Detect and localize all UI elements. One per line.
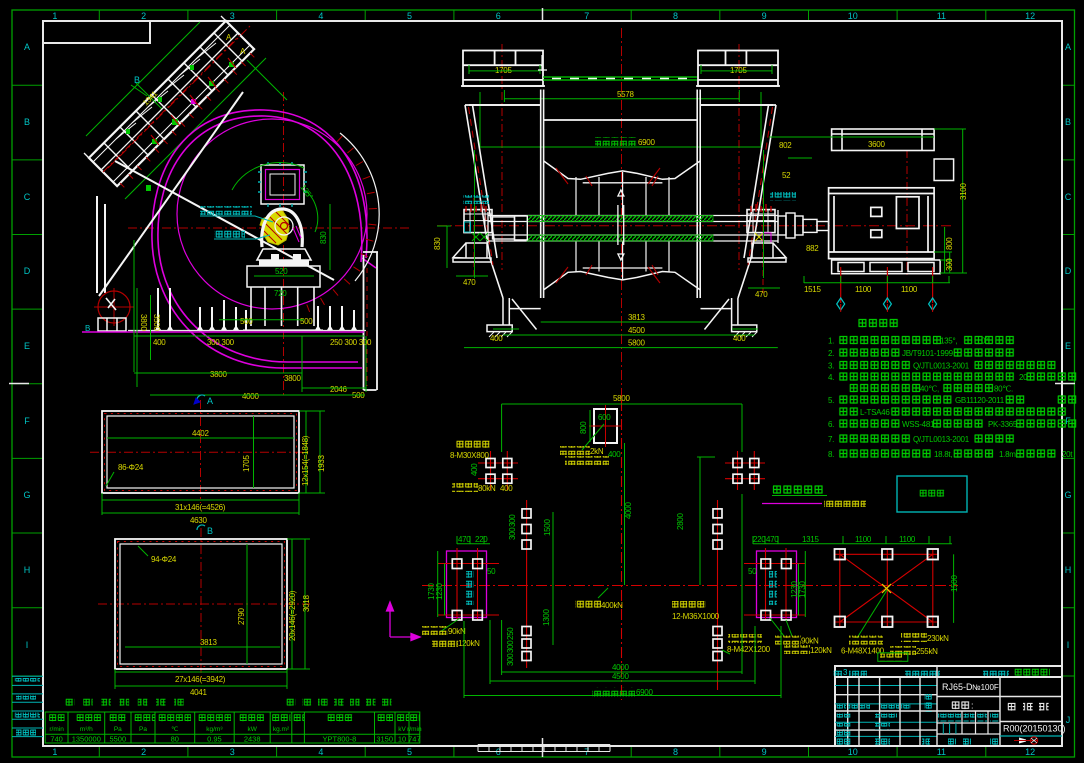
svg-text:12: 12 — [1025, 747, 1035, 757]
svg-text:B: B — [134, 75, 140, 85]
svg-text:300: 300 — [506, 640, 515, 653]
svg-text:12: 12 — [1025, 11, 1035, 21]
svg-text:4500: 4500 — [628, 326, 645, 335]
svg-text:A: A — [24, 42, 30, 52]
svg-text:I: I — [26, 640, 29, 650]
svg-text:2.: 2. — [828, 349, 834, 358]
svg-text:5.: 5. — [828, 396, 834, 405]
svg-text:Q/JTL0013-2001: Q/JTL0013-2001 — [913, 362, 970, 371]
svg-text:90kN: 90kN — [801, 637, 819, 646]
svg-text:1705: 1705 — [242, 455, 251, 472]
svg-text:300: 300 — [945, 258, 954, 271]
svg-text:8-M30X800: 8-M30X800 — [450, 451, 490, 460]
svg-text:8: 8 — [673, 747, 678, 757]
svg-text:1100: 1100 — [855, 285, 872, 294]
svg-text:1100: 1100 — [899, 535, 916, 544]
svg-text:8.: 8. — [828, 450, 834, 459]
svg-text:8-M42X1200: 8-M42X1200 — [727, 645, 771, 654]
svg-text:800: 800 — [579, 421, 588, 434]
svg-text:C: C — [24, 192, 31, 202]
svg-text:5: 5 — [407, 11, 412, 21]
svg-text:D: D — [24, 266, 31, 276]
svg-text:1100: 1100 — [901, 285, 918, 294]
svg-text:20t: 20t — [1062, 450, 1073, 459]
svg-text:3800: 3800 — [139, 314, 148, 331]
svg-text:B: B — [1065, 117, 1071, 127]
svg-text:470: 470 — [766, 535, 779, 544]
svg-text:3.: 3. — [828, 362, 834, 371]
svg-text:27x146(=3942): 27x146(=3942) — [175, 675, 226, 684]
svg-text:10: 10 — [848, 11, 858, 21]
svg-text:18.8t,: 18.8t, — [934, 450, 952, 459]
svg-text:WSS-481: WSS-481 — [902, 420, 935, 429]
svg-text:5578: 5578 — [617, 90, 634, 99]
svg-text:r/min: r/min — [49, 726, 64, 733]
svg-text:400kN: 400kN — [601, 601, 623, 610]
svg-text:470: 470 — [458, 535, 471, 544]
svg-text:I: I — [1067, 640, 1070, 650]
svg-text:2790: 2790 — [237, 608, 246, 625]
svg-text:80: 80 — [171, 735, 179, 744]
svg-text:86-Φ24: 86-Φ24 — [118, 463, 144, 472]
svg-text:470: 470 — [755, 290, 768, 299]
svg-text:120kN: 120kN — [810, 646, 832, 655]
svg-text:GB11120-2011: GB11120-2011 — [955, 396, 1005, 405]
svg-text:4000: 4000 — [624, 502, 633, 519]
svg-text:Pa: Pa — [139, 726, 147, 733]
svg-text:500: 500 — [240, 317, 253, 326]
svg-text:400: 400 — [153, 338, 166, 347]
svg-text:1.: 1. — [828, 337, 834, 346]
svg-text:C: C — [1065, 192, 1072, 202]
svg-text:747: 747 — [408, 735, 421, 744]
svg-text:2kN: 2kN — [590, 447, 604, 456]
svg-text:1230: 1230 — [435, 583, 444, 600]
svg-text:r/min: r/min — [407, 726, 422, 733]
svg-text:kV: kV — [398, 726, 406, 733]
svg-text:kg/m³: kg/m³ — [206, 726, 223, 733]
svg-text:400: 400 — [490, 334, 503, 343]
svg-text:6900: 6900 — [638, 138, 655, 147]
svg-text:m³/h: m³/h — [80, 726, 93, 733]
svg-text:№100F: №100F — [972, 683, 999, 692]
svg-text:3600: 3600 — [868, 140, 885, 149]
svg-text:3500: 3500 — [152, 314, 161, 331]
svg-text:2: 2 — [141, 747, 146, 757]
svg-text:11: 11 — [937, 11, 946, 21]
svg-text:7.: 7. — [828, 435, 834, 444]
svg-text:220: 220 — [753, 535, 766, 544]
svg-text:3: 3 — [230, 11, 235, 21]
svg-text:20x146(=2920): 20x146(=2920) — [288, 590, 297, 641]
svg-text:L-TSA46: L-TSA46 — [860, 408, 890, 417]
svg-text:5: 5 — [407, 747, 412, 757]
svg-text:10: 10 — [848, 747, 858, 757]
svg-text:E: E — [1065, 341, 1071, 351]
svg-text:50: 50 — [748, 567, 757, 576]
svg-text:9: 9 — [762, 11, 767, 21]
svg-text:1: 1 — [52, 747, 57, 757]
svg-text:4.: 4. — [828, 373, 834, 382]
svg-text:255kN: 255kN — [916, 647, 938, 656]
svg-text:YPT800-8: YPT800-8 — [323, 735, 357, 744]
svg-text:90kN: 90kN — [448, 627, 466, 636]
svg-text:12x154(=1848): 12x154(=1848) — [301, 435, 310, 486]
svg-text:3: 3 — [230, 747, 235, 757]
svg-text:3018: 3018 — [302, 595, 311, 612]
svg-text:5800: 5800 — [628, 339, 645, 348]
svg-text:2438: 2438 — [244, 735, 261, 744]
svg-text:80kN: 80kN — [478, 484, 496, 493]
svg-text:9: 9 — [762, 747, 767, 757]
svg-text:kg.m²: kg.m² — [273, 726, 290, 733]
svg-text:12-M36X1000: 12-M36X1000 — [672, 612, 720, 621]
svg-text:H: H — [1065, 565, 1072, 575]
svg-text:1300: 1300 — [542, 609, 551, 626]
svg-text:PK-3365: PK-3365 — [988, 420, 1018, 429]
svg-text:120kN: 120kN — [458, 639, 480, 648]
svg-text:3150: 3150 — [376, 735, 393, 744]
svg-text:A: A — [240, 47, 246, 56]
svg-text:G: G — [23, 490, 30, 500]
svg-text:3100: 3100 — [959, 183, 968, 200]
svg-text:2800: 2800 — [676, 513, 685, 530]
svg-text:230kN: 230kN — [927, 634, 949, 643]
svg-text:8: 8 — [673, 11, 678, 21]
svg-text:D: D — [1065, 266, 1072, 276]
svg-text:1315: 1315 — [802, 535, 819, 544]
svg-text:4: 4 — [318, 747, 323, 757]
svg-text::: : — [971, 701, 974, 711]
svg-text:1350000: 1350000 — [72, 735, 101, 744]
svg-text:300: 300 — [508, 527, 517, 540]
svg-text:G: G — [1064, 490, 1071, 500]
svg-text:4: 4 — [318, 11, 323, 21]
svg-text:1500: 1500 — [543, 519, 552, 536]
svg-text:E: E — [24, 341, 30, 351]
svg-text:3: 3 — [843, 668, 848, 677]
svg-text:300 300: 300 300 — [207, 338, 235, 347]
svg-text:500: 500 — [300, 317, 313, 326]
svg-text:520: 520 — [275, 267, 288, 276]
svg-text:℃: ℃ — [171, 726, 179, 733]
svg-text:94-Φ24: 94-Φ24 — [151, 555, 177, 564]
svg-text:1100: 1100 — [855, 535, 872, 544]
svg-text:400: 400 — [733, 334, 746, 343]
svg-text:4041: 4041 — [190, 688, 207, 697]
svg-text:3800: 3800 — [210, 370, 227, 379]
svg-text:400: 400 — [470, 463, 479, 476]
svg-text:740: 740 — [50, 735, 63, 744]
svg-text:H: H — [24, 565, 31, 575]
svg-text:10: 10 — [398, 735, 406, 744]
svg-text:4630: 4630 — [190, 516, 207, 525]
svg-text:4402: 4402 — [192, 429, 209, 438]
svg-text:3800: 3800 — [284, 374, 301, 383]
svg-text:6.: 6. — [828, 420, 834, 429]
svg-text:J: J — [1066, 715, 1071, 725]
svg-text:4000: 4000 — [612, 663, 629, 672]
svg-text:300: 300 — [506, 653, 515, 666]
svg-text:6900: 6900 — [636, 688, 653, 697]
svg-text:882: 882 — [806, 244, 819, 253]
svg-text:1515: 1515 — [804, 285, 821, 294]
svg-text:4500: 4500 — [612, 672, 629, 681]
svg-text:830: 830 — [433, 237, 442, 250]
svg-text:135°,: 135°, — [940, 337, 957, 346]
svg-text:5500: 5500 — [109, 735, 126, 744]
svg-text:52: 52 — [782, 171, 791, 180]
svg-text:3813: 3813 — [200, 638, 217, 647]
svg-text:B: B — [24, 117, 30, 127]
svg-text:400: 400 — [500, 484, 513, 493]
svg-text:6: 6 — [496, 11, 501, 21]
svg-text:Q/JTL0013-2001: Q/JTL0013-2001 — [913, 435, 970, 444]
svg-text:50: 50 — [487, 567, 496, 576]
svg-text:B: B — [207, 526, 213, 536]
svg-text:470: 470 — [463, 278, 476, 287]
svg-text:802: 802 — [779, 141, 792, 150]
svg-text:400: 400 — [608, 450, 621, 459]
svg-text:kW: kW — [248, 726, 258, 733]
svg-text:RJ65-D: RJ65-D — [942, 682, 973, 692]
svg-text:B: B — [85, 324, 90, 333]
svg-text:A: A — [207, 396, 213, 406]
svg-text:2046: 2046 — [330, 385, 347, 394]
svg-text:250: 250 — [506, 627, 515, 640]
svg-text:1: 1 — [52, 11, 57, 21]
svg-text:A: A — [1065, 42, 1071, 52]
svg-text:7: 7 — [584, 11, 589, 21]
svg-text:4000: 4000 — [242, 392, 259, 401]
svg-text:2: 2 — [141, 11, 146, 21]
svg-text:800: 800 — [945, 237, 954, 250]
svg-text:720: 720 — [274, 289, 287, 298]
svg-text:3813: 3813 — [628, 313, 645, 322]
svg-text:31x146(=4526): 31x146(=4526) — [175, 503, 226, 512]
svg-text:11: 11 — [937, 747, 946, 757]
svg-text:5800: 5800 — [613, 394, 630, 403]
svg-text:R00(20150130): R00(20150130) — [1003, 724, 1066, 734]
svg-text:220: 220 — [475, 535, 488, 544]
svg-text:600: 600 — [598, 413, 611, 422]
svg-text:1500: 1500 — [950, 575, 959, 592]
svg-text:80℃.: 80℃. — [994, 385, 1013, 394]
svg-text:0.95: 0.95 — [207, 735, 222, 744]
svg-text:JB/T9101-1999: JB/T9101-1999 — [902, 349, 954, 358]
svg-text:1933: 1933 — [317, 455, 326, 472]
svg-text:40℃,: 40℃, — [920, 385, 939, 394]
svg-text:830: 830 — [319, 231, 328, 244]
svg-text:Pa: Pa — [114, 726, 122, 733]
svg-text:F: F — [24, 416, 30, 426]
svg-text:300: 300 — [508, 514, 517, 527]
svg-text:1.8m,: 1.8m, — [999, 450, 1018, 459]
